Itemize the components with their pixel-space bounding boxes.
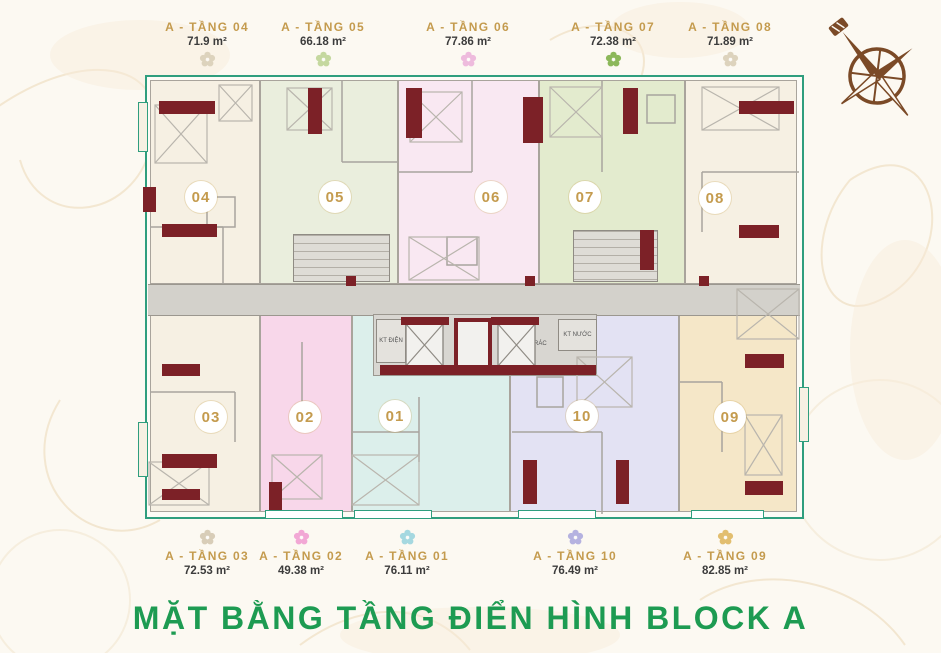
flower-icon	[293, 529, 310, 546]
unit-number-badge: 10	[566, 400, 598, 432]
structural-wall	[308, 88, 322, 134]
unit-number-badge: 03	[195, 401, 227, 433]
label-tang-01: A - TẦNG 01 76.11 m²	[337, 526, 477, 577]
unit-number-badge: 08	[699, 182, 731, 214]
unit-number-badge: 06	[475, 181, 507, 213]
flower-icon	[199, 51, 216, 68]
structural-wall	[525, 276, 535, 286]
label-tang-09: A - TẦNG 09 82.85 m²	[655, 526, 795, 577]
flower-icon	[717, 529, 734, 546]
structural-wall	[745, 354, 784, 368]
flower-icon	[460, 51, 477, 68]
unit-number-badge: 01	[379, 400, 411, 432]
bay-window	[138, 102, 148, 152]
unit-name: A - TẦNG 01	[337, 549, 477, 563]
structural-wall	[162, 489, 200, 500]
flower-icon	[199, 529, 216, 546]
structural-wall	[739, 101, 794, 114]
unit-area: 76.49 m²	[505, 565, 645, 577]
structural-wall	[162, 454, 217, 468]
balcony	[691, 510, 764, 519]
page-title: MẶT BẰNG TẦNG ĐIỂN HÌNH BLOCK A	[0, 600, 941, 637]
unit-name: A - TẦNG 08	[660, 20, 800, 34]
flower-icon	[605, 51, 622, 68]
floor-plan-poster: A - TẦNG 04 71.9 m² A - TẦNG 05 66.18 m²…	[0, 0, 941, 653]
unit-area: 66.18 m²	[253, 36, 393, 48]
structural-wall	[623, 88, 638, 134]
structural-wall	[523, 460, 537, 504]
structural-wall	[491, 317, 539, 325]
unit-area: 82.85 m²	[655, 565, 795, 577]
label-tang-08: A - TẦNG 08 71.89 m²	[660, 20, 800, 68]
label-tang-05: A - TẦNG 05 66.18 m²	[253, 20, 393, 68]
structural-wall	[143, 187, 156, 212]
flower-icon	[315, 51, 332, 68]
unit-number-badge: 07	[569, 181, 601, 213]
balcony	[518, 510, 596, 519]
unit-area: 71.89 m²	[660, 36, 800, 48]
unit-number-badge: 02	[289, 401, 321, 433]
structural-wall	[346, 276, 356, 286]
unit-name: A - TẦNG 06	[398, 20, 538, 34]
structural-wall	[380, 365, 596, 375]
unit-name: A - TẦNG 09	[655, 549, 795, 563]
unit-number-badge: 05	[319, 181, 351, 213]
unit-number-badge: 09	[714, 401, 746, 433]
compass-icon	[812, 8, 941, 138]
unit-name: A - TẦNG 05	[253, 20, 393, 34]
bay-window	[138, 422, 148, 477]
bay-window	[799, 387, 809, 442]
label-tang-10: A - TẦNG 10 76.49 m²	[505, 526, 645, 577]
structural-wall	[745, 481, 783, 495]
flower-icon	[722, 51, 739, 68]
unit-area: 76.11 m²	[337, 565, 477, 577]
structural-wall	[406, 88, 422, 138]
flower-icon	[399, 529, 416, 546]
structural-wall	[523, 97, 543, 143]
structural-wall	[640, 230, 654, 270]
flower-icon	[567, 529, 584, 546]
structural-wall	[269, 482, 282, 512]
structural-wall	[162, 224, 217, 237]
label-tang-06: A - TẦNG 06 77.86 m²	[398, 20, 538, 68]
unit-number-badge: 04	[185, 181, 217, 213]
structural-wall	[739, 225, 779, 238]
structural-wall	[699, 276, 709, 286]
structural-wall	[616, 460, 629, 504]
structural-wall	[162, 364, 200, 376]
balcony	[265, 510, 343, 519]
unit-area: 77.86 m²	[398, 36, 538, 48]
building-floor-plan: KT ĐIỆN RÁC KT NƯỚC	[145, 75, 804, 519]
structural-wall	[159, 101, 215, 114]
unit-name: A - TẦNG 10	[505, 549, 645, 563]
structural-wall	[401, 317, 449, 325]
interior-walls-overlay	[147, 77, 802, 517]
balcony	[354, 510, 432, 519]
